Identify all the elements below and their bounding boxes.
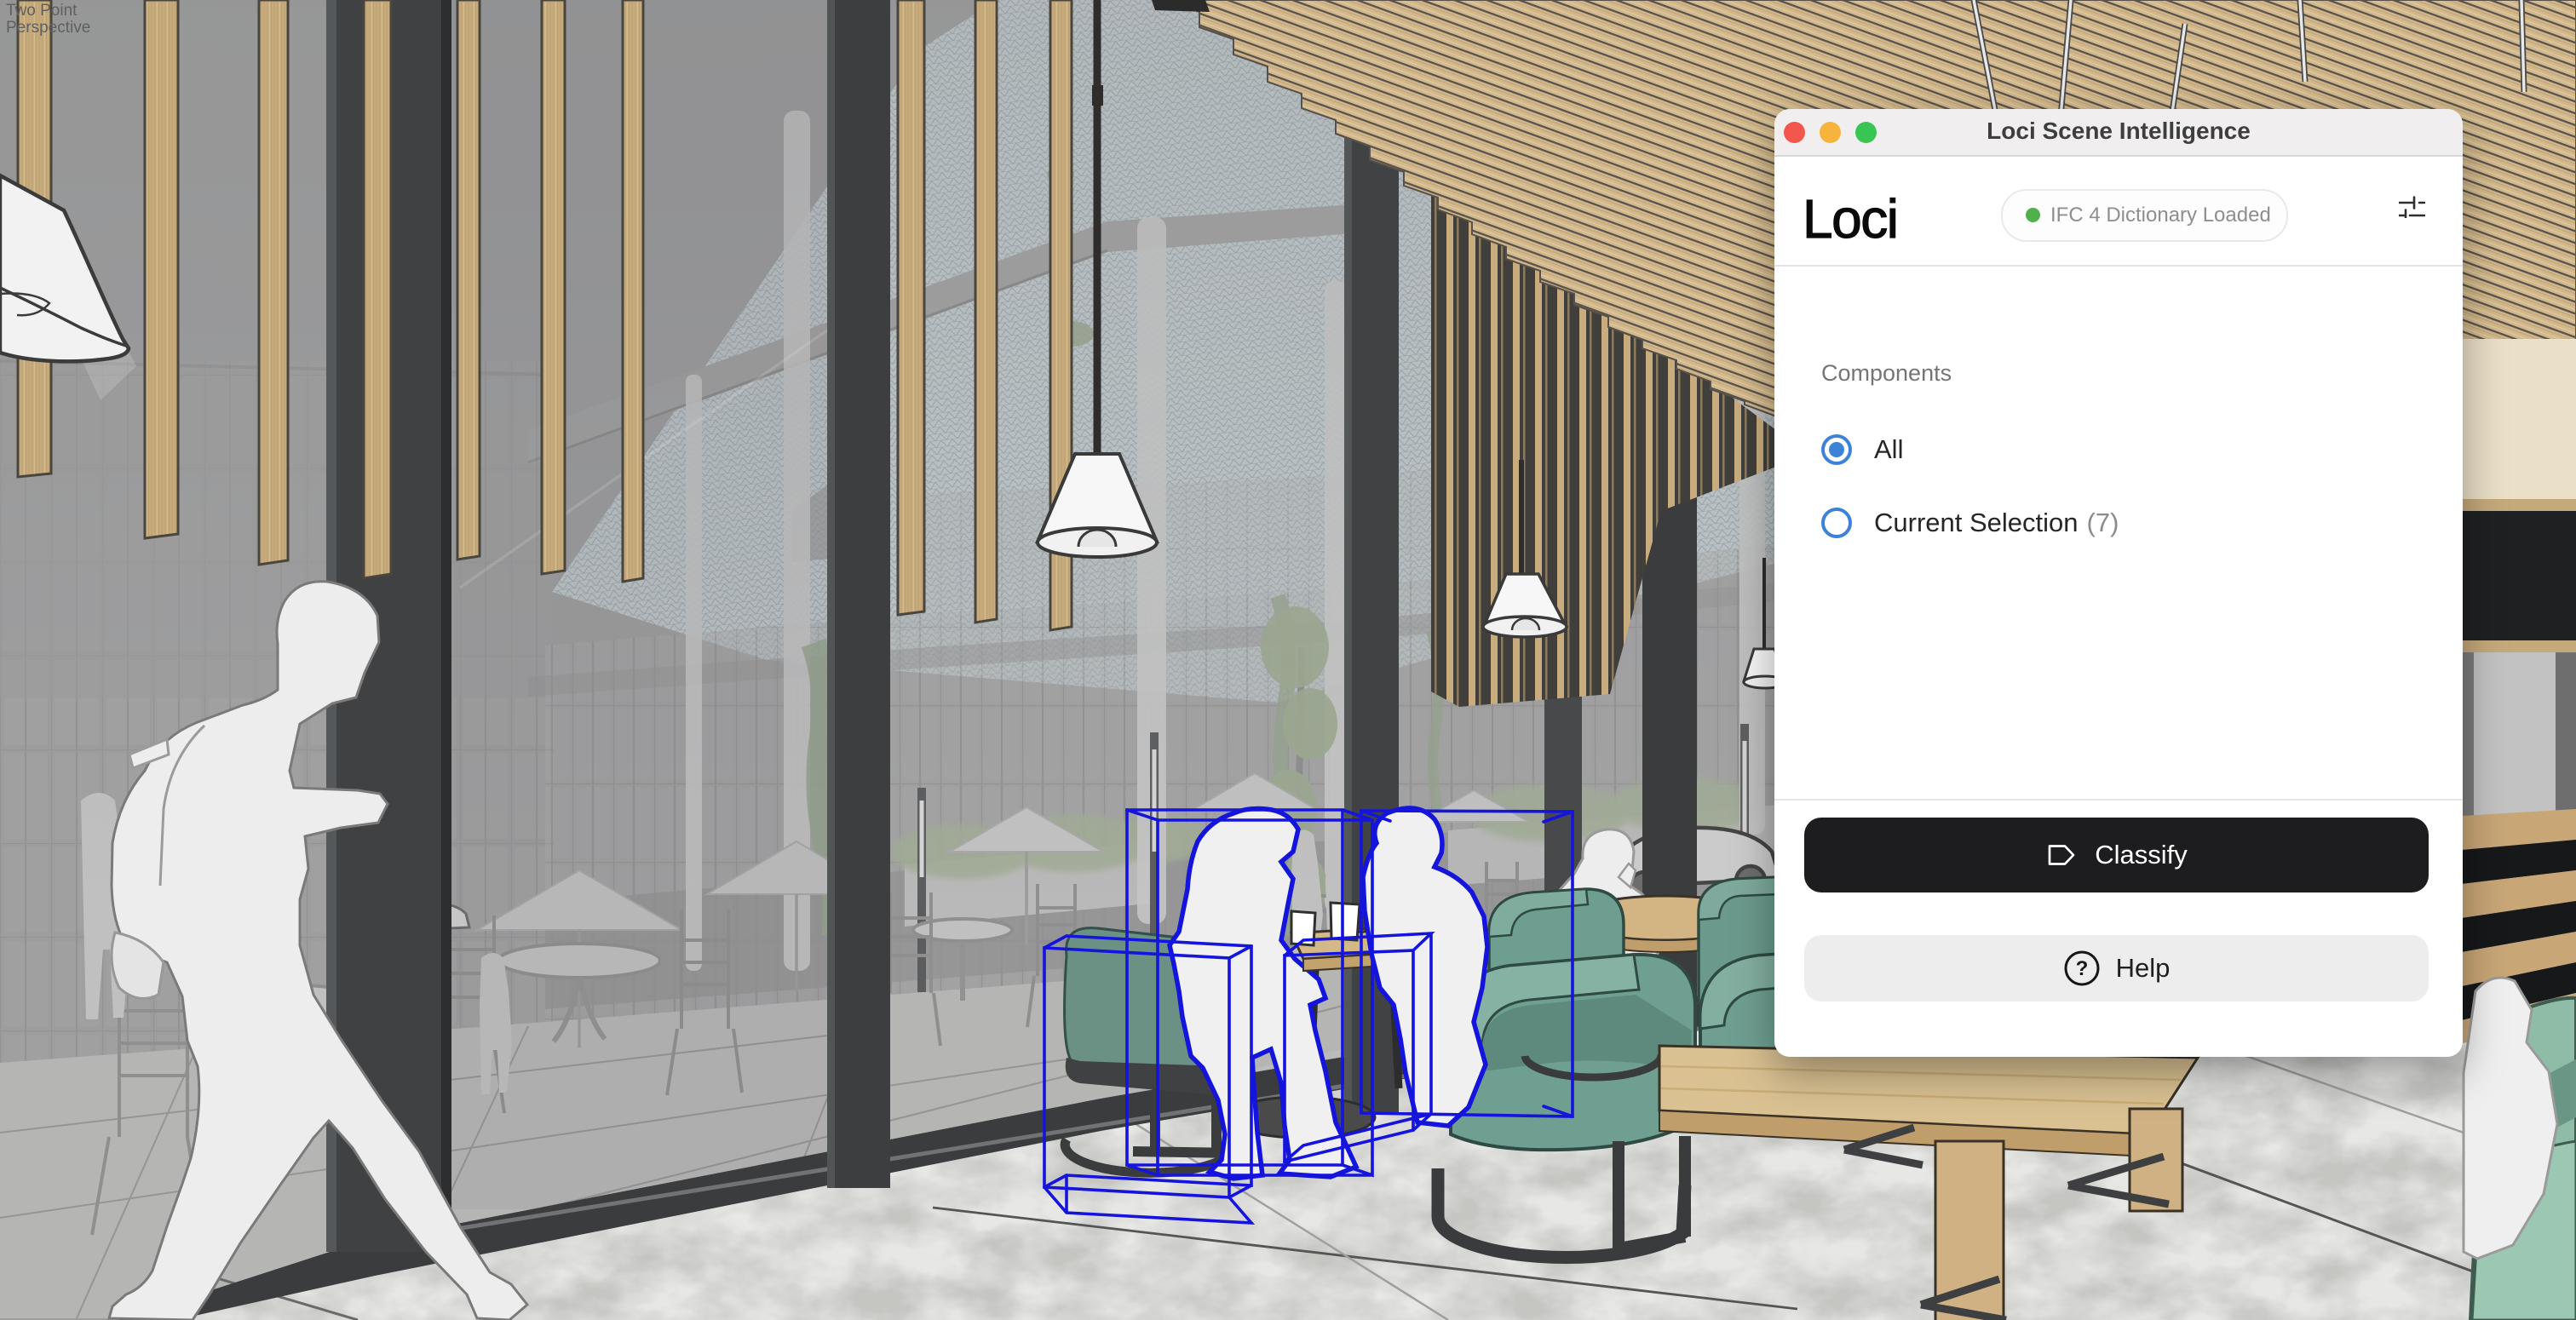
- svg-text:?: ?: [2075, 957, 2088, 980]
